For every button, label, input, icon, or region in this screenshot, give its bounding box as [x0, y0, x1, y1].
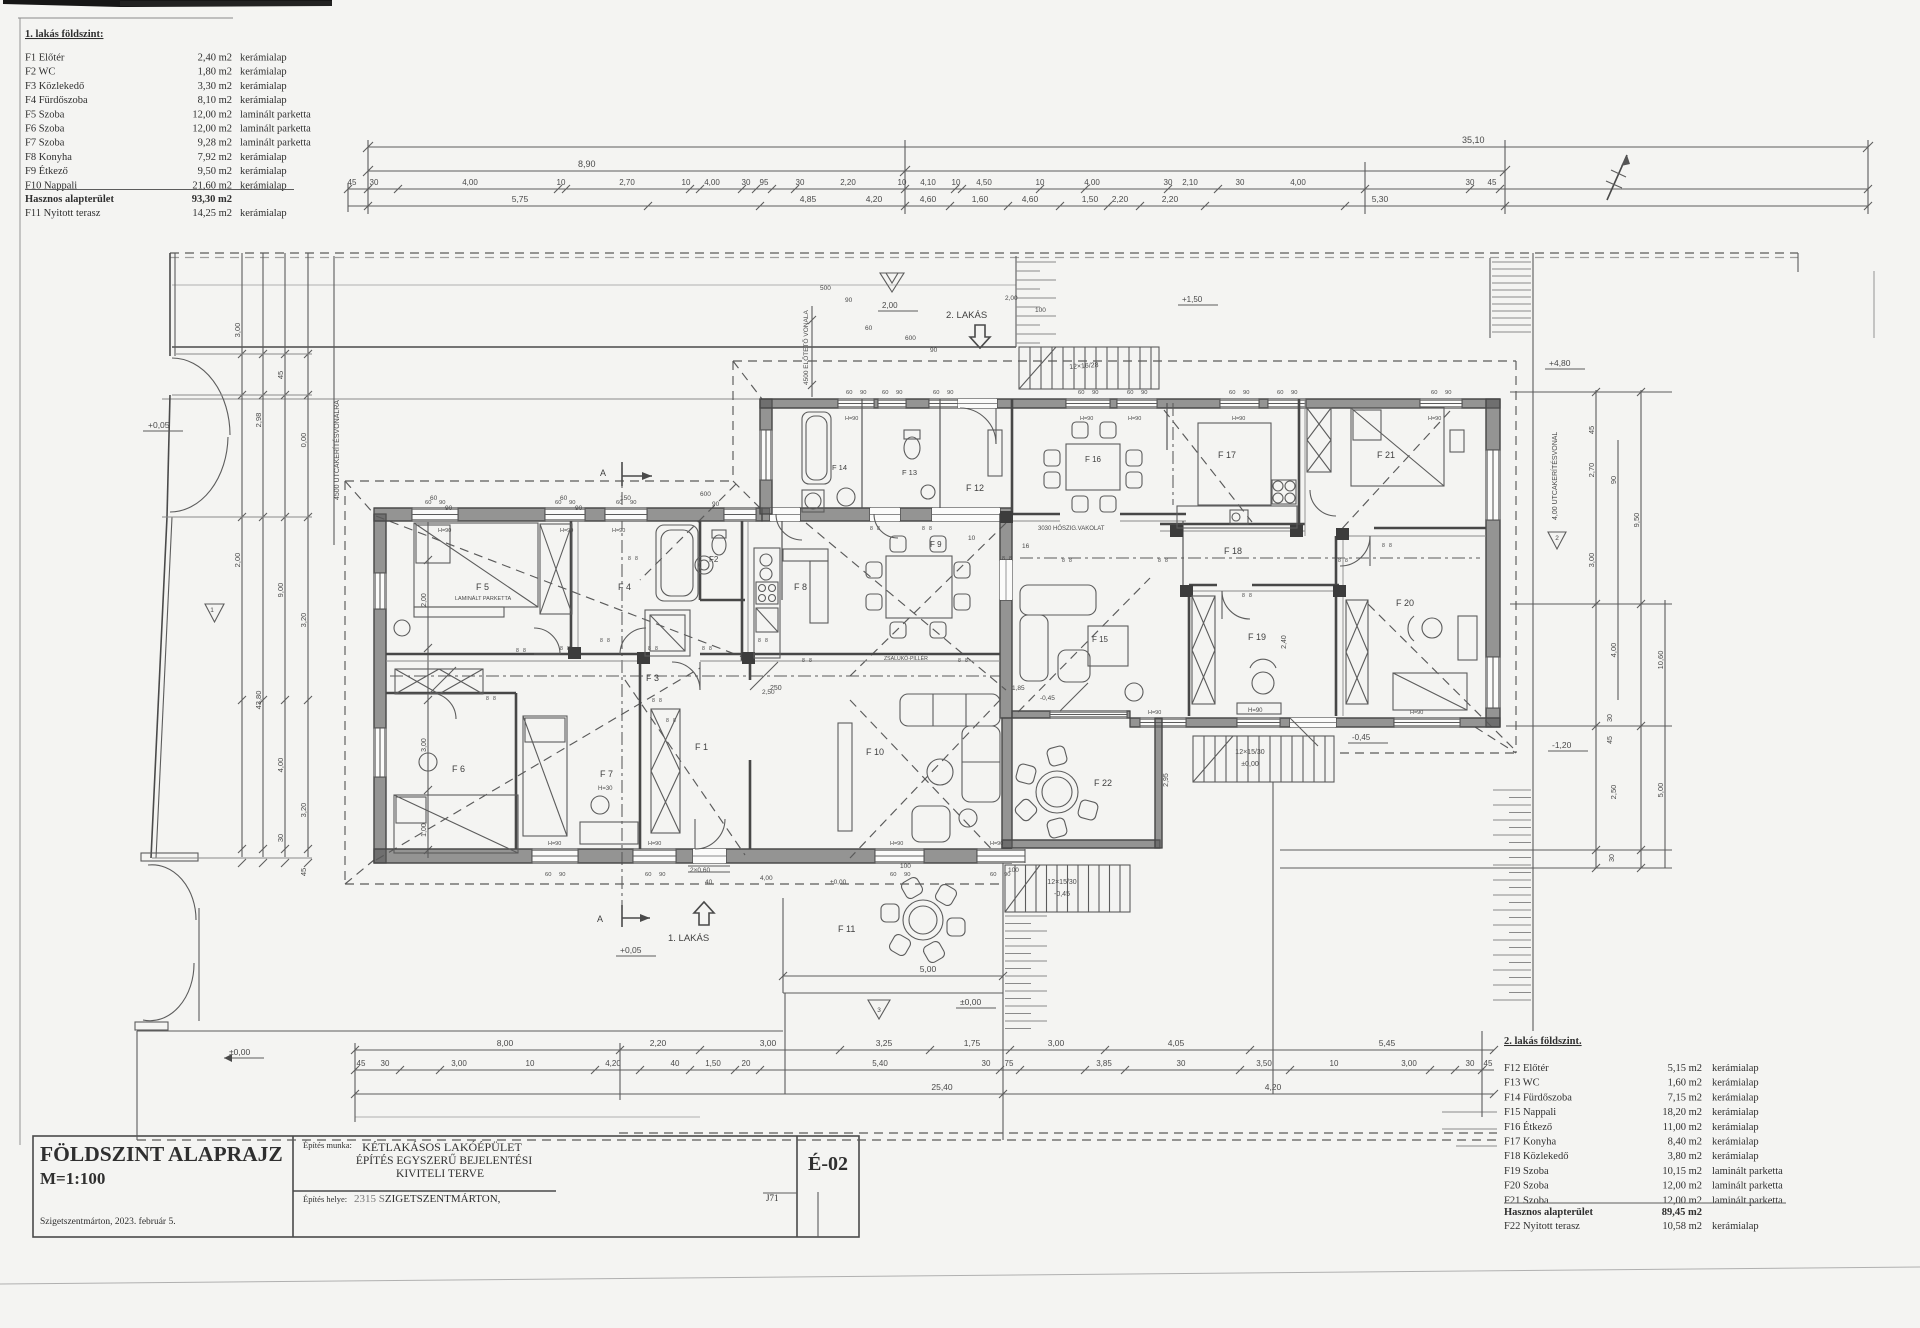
svg-text:18,20 m2: 18,20 m2	[1662, 1107, 1702, 1118]
svg-text:H=90: H=90	[1148, 710, 1161, 716]
svg-text:4500 UTCAKERÍTÉSVONALRA: 4500 UTCAKERÍTÉSVONALRA	[332, 400, 341, 500]
svg-text:60: 60	[990, 872, 996, 878]
svg-text:F 18: F 18	[1224, 546, 1242, 556]
svg-text:H=90: H=90	[1232, 416, 1245, 422]
svg-text:90: 90	[712, 501, 720, 508]
svg-text:90: 90	[930, 347, 938, 354]
svg-text:A: A	[597, 914, 603, 924]
svg-text:É-02: É-02	[808, 1152, 848, 1175]
svg-text:8: 8	[1002, 556, 1005, 562]
svg-text:12×15/30: 12×15/30	[1047, 879, 1076, 886]
svg-text:8: 8	[560, 646, 563, 652]
svg-text:90: 90	[1291, 390, 1297, 396]
svg-text:8: 8	[870, 526, 873, 532]
svg-text:90: 90	[1609, 476, 1618, 484]
svg-text:F12 Előtér: F12 Előtér	[1504, 1063, 1549, 1074]
svg-text:kerámialap: kerámialap	[1712, 1078, 1759, 1089]
svg-text:Szigetszentmárton, 2023. febru: Szigetszentmárton, 2023. február 5.	[40, 1216, 176, 1227]
svg-text:4,00 UTCAKERÍTÉSVONAL: 4,00 UTCAKERÍTÉSVONAL	[1550, 432, 1559, 520]
svg-text:F7 Szoba: F7 Szoba	[25, 138, 65, 149]
svg-text:10: 10	[968, 535, 976, 542]
svg-text:3,20: 3,20	[299, 613, 308, 628]
svg-text:F 5: F 5	[476, 582, 489, 592]
svg-text:95: 95	[760, 178, 769, 187]
svg-text:F 20: F 20	[1396, 598, 1414, 608]
svg-text:F5 Szoba: F5 Szoba	[25, 109, 65, 120]
svg-text:kerámialap: kerámialap	[240, 67, 287, 78]
svg-text:90: 90	[904, 872, 910, 878]
svg-text:2,70: 2,70	[619, 178, 635, 187]
svg-text:5,75: 5,75	[512, 194, 529, 204]
svg-text:30: 30	[742, 178, 751, 187]
svg-text:9,50 m2: 9,50 m2	[198, 166, 232, 177]
svg-text:8: 8	[958, 658, 961, 664]
svg-text:8: 8	[523, 648, 526, 654]
svg-text:60: 60	[865, 325, 873, 332]
svg-text:60: 60	[890, 872, 896, 878]
svg-text:laminált parketta: laminált parketta	[1712, 1195, 1783, 1206]
svg-text:10: 10	[526, 1059, 535, 1068]
svg-text:4,20: 4,20	[866, 194, 883, 204]
svg-text:1,85: 1,85	[1012, 685, 1025, 692]
svg-text:F9 Étkező: F9 Étkező	[25, 165, 68, 177]
svg-text:8: 8	[1242, 593, 1245, 599]
svg-text:F22 Nyitott terasz: F22 Nyitott terasz	[1504, 1221, 1580, 1232]
svg-text:8: 8	[516, 648, 519, 654]
svg-text:+0,05: +0,05	[148, 420, 170, 430]
svg-text:2,20: 2,20	[650, 1038, 667, 1048]
svg-text:laminált parketta: laminált parketta	[240, 124, 311, 135]
svg-text:4,00: 4,00	[1290, 178, 1306, 187]
svg-text:30: 30	[796, 178, 805, 187]
svg-text:F2 WC: F2 WC	[25, 67, 55, 78]
svg-text:2,50: 2,50	[762, 689, 775, 696]
svg-text:kerámialap: kerámialap	[1712, 1151, 1759, 1162]
svg-text:4500 ELŐTETŐ VONALA: 4500 ELŐTETŐ VONALA	[801, 310, 810, 385]
svg-text:3030 HŐSZIG.VAKOLAT: 3030 HŐSZIG.VAKOLAT	[1038, 525, 1105, 532]
svg-text:20: 20	[742, 1059, 751, 1068]
svg-text:2,00: 2,00	[233, 553, 242, 568]
svg-text:30: 30	[1177, 1059, 1186, 1068]
svg-text:1. lakás földszint:: 1. lakás földszint:	[25, 29, 103, 40]
svg-text:Hasznos alapterület: Hasznos alapterület	[1504, 1207, 1593, 1218]
svg-text:4,50: 4,50	[976, 178, 992, 187]
svg-text:5,00: 5,00	[1656, 783, 1665, 798]
svg-text:8,10 m2: 8,10 m2	[198, 95, 232, 106]
svg-text:8: 8	[1009, 556, 1012, 562]
svg-text:laminált parketta: laminált parketta	[1712, 1166, 1783, 1177]
svg-text:8: 8	[652, 698, 655, 704]
svg-text:F14 Fürdőszoba: F14 Fürdőszoba	[1504, 1092, 1572, 1103]
svg-text:60: 60	[1078, 390, 1084, 396]
svg-text:H=90: H=90	[548, 841, 561, 847]
svg-text:F 10: F 10	[866, 747, 884, 757]
svg-text:4,00: 4,00	[704, 178, 720, 187]
svg-text:35,10: 35,10	[1462, 135, 1485, 145]
svg-text:F21 Szoba: F21 Szoba	[1504, 1195, 1549, 1206]
svg-text:H=90: H=90	[990, 841, 1003, 847]
svg-text:2,40: 2,40	[1281, 635, 1288, 649]
svg-text:45: 45	[276, 371, 285, 379]
svg-text:8: 8	[929, 526, 932, 532]
svg-text:-0,45: -0,45	[1054, 891, 1070, 898]
svg-text:9,28 m2: 9,28 m2	[198, 138, 232, 149]
svg-text:H=90: H=90	[1410, 710, 1423, 716]
svg-text:0,00: 0,00	[299, 433, 308, 448]
svg-text:Építés munka:: Építés munka:	[303, 1140, 352, 1150]
svg-text:8: 8	[965, 658, 968, 664]
svg-text:1,80 m2: 1,80 m2	[198, 67, 232, 78]
svg-text:8: 8	[607, 638, 610, 644]
svg-text:F 4: F 4	[618, 582, 631, 592]
svg-text:10,15 m2: 10,15 m2	[1662, 1166, 1702, 1177]
svg-text:8: 8	[758, 638, 761, 644]
svg-text:90: 90	[630, 500, 636, 506]
svg-text:8: 8	[628, 556, 631, 562]
svg-text:8: 8	[635, 556, 638, 562]
svg-text:3,00: 3,00	[760, 1038, 777, 1048]
svg-text:600: 600	[700, 491, 711, 498]
svg-text:1. LAKÁS: 1. LAKÁS	[668, 933, 709, 944]
svg-text:F 12: F 12	[966, 483, 984, 493]
svg-text:90: 90	[1004, 872, 1010, 878]
svg-text:14,25 m2: 14,25 m2	[192, 208, 232, 219]
svg-text:10: 10	[952, 178, 961, 187]
svg-text:8: 8	[809, 658, 812, 664]
svg-text:H=30: H=30	[598, 786, 613, 792]
svg-text:H=90: H=90	[438, 528, 451, 534]
svg-text:8: 8	[877, 526, 880, 532]
svg-text:500: 500	[820, 285, 831, 292]
svg-text:90: 90	[1445, 390, 1451, 396]
svg-text:-0,45: -0,45	[1040, 695, 1055, 702]
svg-text:kerámialap: kerámialap	[1712, 1122, 1759, 1133]
svg-text:2315 SZIGETSZENTMÁRTON,: 2315 SZIGETSZENTMÁRTON,	[354, 1193, 501, 1205]
svg-text:7,92 m2: 7,92 m2	[198, 152, 232, 163]
svg-text:8: 8	[922, 526, 925, 532]
svg-text:4,10: 4,10	[920, 178, 936, 187]
svg-text:H=90: H=90	[1128, 416, 1141, 422]
svg-text:600: 600	[905, 335, 916, 342]
svg-text:LAMINÁLT PARKETTA: LAMINÁLT PARKETTA	[455, 595, 511, 602]
svg-text:F 3: F 3	[646, 673, 659, 683]
svg-text:F 7: F 7	[600, 769, 613, 779]
svg-text:9,00: 9,00	[276, 583, 285, 598]
svg-text:60: 60	[1127, 390, 1133, 396]
svg-text:+4,80: +4,80	[1549, 358, 1571, 368]
svg-text:12,00 m2: 12,00 m2	[192, 124, 232, 135]
svg-text:7,15 m2: 7,15 m2	[1668, 1092, 1702, 1103]
svg-text:5,40: 5,40	[872, 1059, 888, 1068]
svg-text:F6 Szoba: F6 Szoba	[25, 124, 65, 135]
svg-text:2,20: 2,20	[1162, 194, 1179, 204]
svg-text:±0,00: ±0,00	[830, 879, 847, 886]
svg-text:Hasznos alapterület: Hasznos alapterület	[25, 194, 114, 205]
svg-text:60: 60	[616, 500, 622, 506]
svg-text:8: 8	[666, 718, 669, 724]
svg-text:F18 Közlekedő: F18 Közlekedő	[1504, 1151, 1568, 1162]
svg-text:60: 60	[545, 872, 551, 878]
svg-text:3,85: 3,85	[1096, 1059, 1112, 1068]
svg-text:30: 30	[381, 1059, 390, 1068]
svg-text:8: 8	[1389, 543, 1392, 549]
svg-text:90: 90	[569, 500, 575, 506]
svg-text:KIVITELI TERVE: KIVITELI TERVE	[396, 1168, 484, 1180]
svg-text:8: 8	[765, 638, 768, 644]
svg-text:F 8: F 8	[794, 582, 807, 592]
svg-text:1: 1	[210, 607, 214, 614]
svg-text:8: 8	[673, 718, 676, 724]
svg-text:10: 10	[682, 178, 691, 187]
svg-text:ZSALUKŐ-PILLÉR: ZSALUKŐ-PILLÉR	[884, 655, 928, 662]
svg-text:4,00: 4,00	[1609, 643, 1618, 658]
svg-text:2,95: 2,95	[1163, 773, 1170, 787]
svg-text:100: 100	[1035, 307, 1046, 314]
svg-text:ÉPÍTÉS EGYSZERŰ BEJELENTÉSI: ÉPÍTÉS EGYSZERŰ BEJELENTÉSI	[356, 1153, 532, 1167]
svg-text:60: 60	[882, 390, 888, 396]
svg-text:2,70: 2,70	[1587, 463, 1596, 478]
svg-text:4,05: 4,05	[1168, 1038, 1185, 1048]
svg-text:90: 90	[860, 390, 866, 396]
svg-text:93,30 m2: 93,30 m2	[192, 194, 232, 205]
svg-text:H=90: H=90	[1428, 416, 1441, 422]
svg-text:2,00: 2,00	[882, 301, 898, 310]
svg-text:4,00: 4,00	[760, 875, 773, 882]
svg-text:12×15/30: 12×15/30	[1235, 749, 1264, 756]
svg-text:8: 8	[659, 698, 662, 704]
svg-text:2,00: 2,00	[1005, 295, 1018, 302]
svg-text:F16 Étkező: F16 Étkező	[1504, 1121, 1552, 1133]
svg-text:2,98: 2,98	[254, 413, 263, 428]
svg-text:kerámialap: kerámialap	[240, 208, 287, 219]
svg-text:2: 2	[1555, 535, 1559, 542]
svg-text:H=90: H=90	[1080, 416, 1093, 422]
svg-text:2×0,60: 2×0,60	[690, 867, 710, 874]
svg-text:90: 90	[896, 390, 902, 396]
svg-text:2,00: 2,00	[421, 593, 428, 607]
svg-text:laminált parketta: laminált parketta	[1712, 1181, 1783, 1192]
svg-text:1,60: 1,60	[972, 194, 989, 204]
svg-text:4,00: 4,00	[462, 178, 478, 187]
svg-text:kerámialap: kerámialap	[240, 81, 287, 92]
svg-text:kerámialap: kerámialap	[240, 152, 287, 163]
svg-text:3,80 m2: 3,80 m2	[1668, 1151, 1702, 1162]
svg-text:10: 10	[1330, 1059, 1339, 1068]
svg-text:3,50: 3,50	[1256, 1059, 1272, 1068]
svg-text:M=1:100: M=1:100	[40, 1169, 105, 1188]
svg-text:4,00: 4,00	[1084, 178, 1100, 187]
svg-text:40: 40	[671, 1059, 680, 1068]
svg-text:+0,05: +0,05	[620, 945, 642, 955]
svg-text:8: 8	[1165, 558, 1168, 564]
svg-text:kerámialap: kerámialap	[1712, 1063, 1759, 1074]
svg-text:5,00: 5,00	[920, 964, 937, 974]
svg-text:5,30: 5,30	[1372, 194, 1389, 204]
svg-text:60: 60	[1277, 390, 1283, 396]
svg-text:8: 8	[1158, 558, 1161, 564]
svg-text:H=90: H=90	[648, 841, 661, 847]
svg-text:8: 8	[702, 646, 705, 652]
svg-text:11,00 m2: 11,00 m2	[1663, 1122, 1702, 1133]
svg-text:8: 8	[1062, 558, 1065, 564]
svg-text:2,20: 2,20	[840, 178, 856, 187]
svg-text:5,45: 5,45	[1379, 1038, 1396, 1048]
svg-text:8: 8	[1382, 543, 1385, 549]
svg-text:laminált parketta: laminált parketta	[240, 138, 311, 149]
svg-text:60: 60	[555, 500, 561, 506]
svg-text:12,00 m2: 12,00 m2	[1662, 1181, 1702, 1192]
svg-text:90: 90	[559, 872, 565, 878]
svg-text:8: 8	[802, 658, 805, 664]
svg-text:2. lakás földszint.: 2. lakás földszint.	[1504, 1036, 1582, 1047]
svg-text:25,40: 25,40	[931, 1082, 953, 1092]
svg-text:F 17: F 17	[1218, 450, 1236, 460]
svg-text:1,50: 1,50	[1082, 194, 1099, 204]
svg-text:60: 60	[425, 500, 431, 506]
svg-text:Építés helye:: Építés helye:	[303, 1194, 347, 1204]
svg-text:-0,45: -0,45	[1352, 733, 1371, 742]
svg-text:H=90: H=90	[1248, 708, 1263, 714]
svg-text:F 11: F 11	[838, 924, 855, 934]
svg-text:45: 45	[348, 178, 357, 187]
svg-text:30: 30	[1607, 714, 1614, 722]
svg-text:3,25: 3,25	[876, 1038, 893, 1048]
svg-text:45: 45	[299, 868, 308, 876]
svg-text:F20 Szoba: F20 Szoba	[1504, 1181, 1549, 1192]
svg-text:4,60: 4,60	[1022, 194, 1039, 204]
svg-text:8: 8	[709, 646, 712, 652]
svg-text:F11 Nyitott terasz: F11 Nyitott terasz	[25, 208, 101, 219]
svg-text:KÉTLAKÁSOS LAKÓÉPÜLET: KÉTLAKÁSOS LAKÓÉPÜLET	[362, 1140, 522, 1154]
svg-text:±0,00: ±0,00	[229, 1047, 250, 1057]
svg-text:10,60: 10,60	[1656, 651, 1665, 670]
svg-text:H=90: H=90	[560, 528, 573, 534]
svg-text:3: 3	[877, 1007, 881, 1014]
svg-text:10,58 m2: 10,58 m2	[1662, 1221, 1702, 1232]
svg-text:60: 60	[933, 390, 939, 396]
svg-text:kerámialap: kerámialap	[240, 53, 287, 64]
svg-text:F 16: F 16	[1085, 455, 1102, 464]
svg-text:1,50: 1,50	[705, 1059, 721, 1068]
svg-text:J71: J71	[766, 1193, 779, 1203]
svg-text:12,00 m2: 12,00 m2	[192, 109, 232, 120]
svg-text:8,90: 8,90	[578, 159, 596, 169]
svg-text:F 15: F 15	[1092, 635, 1109, 644]
svg-text:2,10: 2,10	[1182, 178, 1198, 187]
svg-text:FÖLDSZINT ALAPRAJZ: FÖLDSZINT ALAPRAJZ	[40, 1142, 283, 1166]
svg-text:8: 8	[655, 646, 658, 652]
svg-text:90: 90	[845, 297, 853, 304]
svg-text:F1 Előtér: F1 Előtér	[25, 53, 65, 64]
svg-text:H=90: H=90	[845, 416, 858, 422]
svg-text:F 14: F 14	[832, 463, 847, 472]
svg-text:43,80: 43,80	[254, 691, 263, 710]
svg-text:45: 45	[1607, 736, 1614, 744]
svg-text:45: 45	[1587, 426, 1596, 434]
svg-text:3,00: 3,00	[421, 738, 428, 752]
svg-text:2,40 m2: 2,40 m2	[198, 53, 232, 64]
svg-text:45: 45	[1488, 178, 1497, 187]
svg-text:90: 90	[575, 505, 583, 512]
svg-text:1,00: 1,00	[421, 823, 428, 837]
svg-text:8: 8	[600, 638, 603, 644]
svg-text:kerámialap: kerámialap	[1712, 1137, 1759, 1148]
svg-text:H=90: H=90	[612, 528, 625, 534]
svg-text:F 13: F 13	[902, 468, 917, 477]
svg-text:2,20: 2,20	[1112, 194, 1129, 204]
svg-text:3,30 m2: 3,30 m2	[198, 81, 232, 92]
svg-text:kerámialap: kerámialap	[240, 166, 287, 177]
svg-text:10: 10	[898, 178, 907, 187]
svg-text:30: 30	[1466, 1059, 1475, 1068]
svg-text:60: 60	[1431, 390, 1437, 396]
svg-text:60: 60	[846, 390, 852, 396]
svg-text:+1,50: +1,50	[1182, 295, 1203, 304]
svg-text:12,00 m2: 12,00 m2	[1662, 1195, 1702, 1206]
svg-text:30: 30	[1236, 178, 1245, 187]
svg-text:±0,00: ±0,00	[960, 997, 981, 1007]
svg-text:3,00: 3,00	[451, 1059, 467, 1068]
svg-text:4,20: 4,20	[605, 1059, 621, 1068]
svg-text:89,45 m2: 89,45 m2	[1662, 1207, 1702, 1218]
svg-text:F2: F2	[709, 555, 719, 564]
svg-text:9,50: 9,50	[1632, 513, 1641, 528]
svg-text:8,40 m2: 8,40 m2	[1668, 1137, 1702, 1148]
svg-text:F19 Szoba: F19 Szoba	[1504, 1166, 1549, 1177]
svg-text:F 19: F 19	[1248, 632, 1266, 642]
svg-text:F8 Konyha: F8 Konyha	[25, 152, 72, 163]
svg-text:90: 90	[445, 505, 453, 512]
svg-text:8: 8	[1069, 558, 1072, 564]
svg-text:8: 8	[1249, 593, 1252, 599]
svg-text:8: 8	[1338, 558, 1341, 564]
svg-text:90: 90	[439, 500, 445, 506]
svg-text:30: 30	[1609, 854, 1616, 862]
svg-text:3,00: 3,00	[1401, 1059, 1417, 1068]
svg-text:40: 40	[705, 879, 713, 886]
svg-text:-1,20: -1,20	[1552, 740, 1572, 750]
svg-text:F 9: F 9	[930, 540, 942, 549]
svg-text:1,75: 1,75	[964, 1038, 981, 1048]
svg-text:30: 30	[982, 1059, 991, 1068]
svg-text:kerámialap: kerámialap	[1712, 1107, 1759, 1118]
svg-text:4,60: 4,60	[920, 194, 937, 204]
svg-text:F15 Nappali: F15 Nappali	[1504, 1107, 1556, 1118]
svg-text:F 1: F 1	[695, 742, 708, 752]
svg-text:F17 Konyha: F17 Konyha	[1504, 1137, 1557, 1148]
svg-text:F3 Közlekedő: F3 Közlekedő	[25, 81, 84, 92]
svg-text:8: 8	[1345, 558, 1348, 564]
svg-text:60: 60	[645, 872, 651, 878]
svg-text:F 21: F 21	[1377, 450, 1395, 460]
svg-text:5,15 m2: 5,15 m2	[1668, 1063, 1702, 1074]
svg-text:F 6: F 6	[452, 764, 465, 774]
svg-text:90: 90	[659, 872, 665, 878]
svg-text:2. LAKÁS: 2. LAKÁS	[946, 310, 987, 321]
svg-text:8: 8	[486, 696, 489, 702]
svg-text:3,20: 3,20	[299, 803, 308, 818]
svg-text:F4 Fürdőszoba: F4 Fürdőszoba	[25, 95, 88, 106]
svg-text:H=90: H=90	[890, 841, 903, 847]
svg-text:3,00: 3,00	[1587, 553, 1596, 568]
svg-text:8,00: 8,00	[497, 1038, 514, 1048]
svg-text:100: 100	[900, 863, 911, 870]
svg-text:A: A	[600, 468, 606, 478]
svg-text:30: 30	[276, 834, 285, 842]
svg-text:90: 90	[1141, 390, 1147, 396]
svg-text:90: 90	[1243, 390, 1249, 396]
svg-text:3,00: 3,00	[1048, 1038, 1065, 1048]
